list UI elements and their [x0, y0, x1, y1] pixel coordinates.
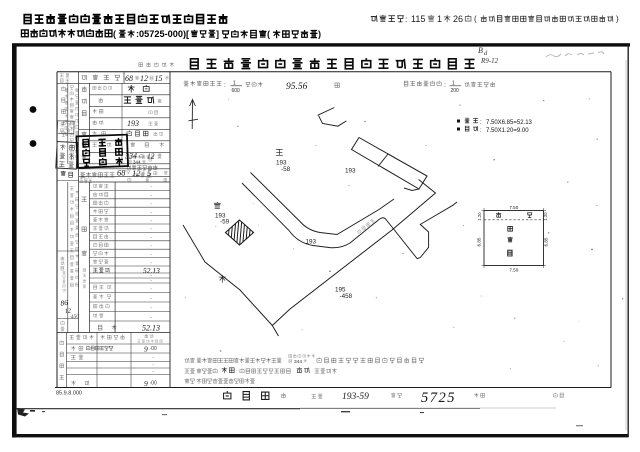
- svg-text:15: 15: [155, 74, 163, 83]
- svg-text:115: 115: [411, 14, 425, 24]
- svg-text:85.9.8.000: 85.9.8.000: [56, 391, 82, 397]
- svg-text:·00: ·00: [150, 381, 157, 387]
- svg-text:95.56: 95.56: [286, 82, 308, 92]
- svg-text:344: 344: [294, 359, 302, 365]
- svg-text:5725: 5725: [421, 390, 456, 406]
- svg-text:·: ·: [150, 243, 152, 250]
- svg-text::: :: [405, 14, 407, 24]
- svg-text:6.85: 6.85: [544, 237, 549, 246]
- svg-text:7.50: 7.50: [509, 205, 518, 210]
- svg-text::: :: [444, 82, 446, 89]
- svg-text:1.20: 1.20: [543, 212, 548, 221]
- svg-text:]: ]: [216, 29, 219, 39]
- svg-text:86: 86: [60, 298, 69, 308]
- svg-text:200: 200: [451, 88, 460, 94]
- svg-text:(: (: [474, 15, 477, 24]
- svg-text:344: 344: [133, 160, 141, 165]
- svg-text:1.20: 1.20: [477, 212, 482, 221]
- svg-text:7.50: 7.50: [509, 268, 518, 273]
- svg-text:-58: -58: [281, 166, 291, 173]
- svg-text:·: ·: [150, 217, 152, 224]
- svg-text:(: (: [113, 29, 116, 39]
- svg-text:-458: -458: [340, 293, 353, 300]
- svg-text:-59: -59: [220, 219, 230, 226]
- svg-text:9: 9: [144, 379, 148, 388]
- svg-text:·: ·: [150, 251, 152, 258]
- svg-text:68: 68: [117, 168, 126, 178]
- svg-text:·450: ·450: [69, 312, 80, 320]
- svg-text:·: ·: [150, 305, 152, 312]
- svg-text:12: 12: [132, 168, 141, 178]
- svg-text:6.85: 6.85: [477, 237, 482, 246]
- svg-text:·: ·: [152, 354, 154, 361]
- svg-text::: :: [224, 82, 226, 89]
- svg-text:9: 9: [144, 345, 148, 354]
- svg-text:·: ·: [150, 234, 152, 241]
- svg-text:26: 26: [453, 14, 463, 24]
- svg-text::05725-000)[: :05725-000)[: [136, 29, 189, 39]
- svg-text:B: B: [478, 46, 483, 55]
- svg-text:·: ·: [150, 201, 152, 208]
- svg-text:5: 5: [147, 168, 151, 178]
- svg-text:R9-12: R9-12: [480, 57, 499, 65]
- svg-text:193: 193: [345, 168, 356, 175]
- svg-text:·: ·: [150, 295, 152, 302]
- svg-text:193: 193: [127, 119, 139, 128]
- svg-text:·: ·: [150, 184, 152, 191]
- svg-text:193-59: 193-59: [342, 392, 369, 402]
- svg-text:·: ·: [150, 277, 152, 284]
- svg-text:·: ·: [150, 286, 152, 293]
- svg-text:·00: ·00: [150, 346, 157, 352]
- svg-text:·: ·: [150, 226, 152, 233]
- svg-text:600: 600: [232, 88, 241, 94]
- svg-text:): ): [616, 15, 619, 24]
- svg-text:·: ·: [150, 192, 152, 199]
- svg-text:1: 1: [437, 14, 442, 24]
- svg-text:): ): [318, 29, 321, 39]
- svg-text:7.50X6.85=52.13: 7.50X6.85=52.13: [486, 120, 533, 126]
- svg-text:12: 12: [147, 152, 155, 161]
- svg-text:·: ·: [152, 368, 154, 375]
- svg-text:·: ·: [150, 314, 152, 321]
- svg-text:52.13: 52.13: [142, 324, 160, 333]
- svg-text:7.50X1.20=9.00: 7.50X1.20=9.00: [486, 128, 529, 134]
- svg-text:68: 68: [125, 74, 133, 83]
- svg-text:12: 12: [140, 74, 148, 83]
- svg-text:·: ·: [150, 209, 152, 216]
